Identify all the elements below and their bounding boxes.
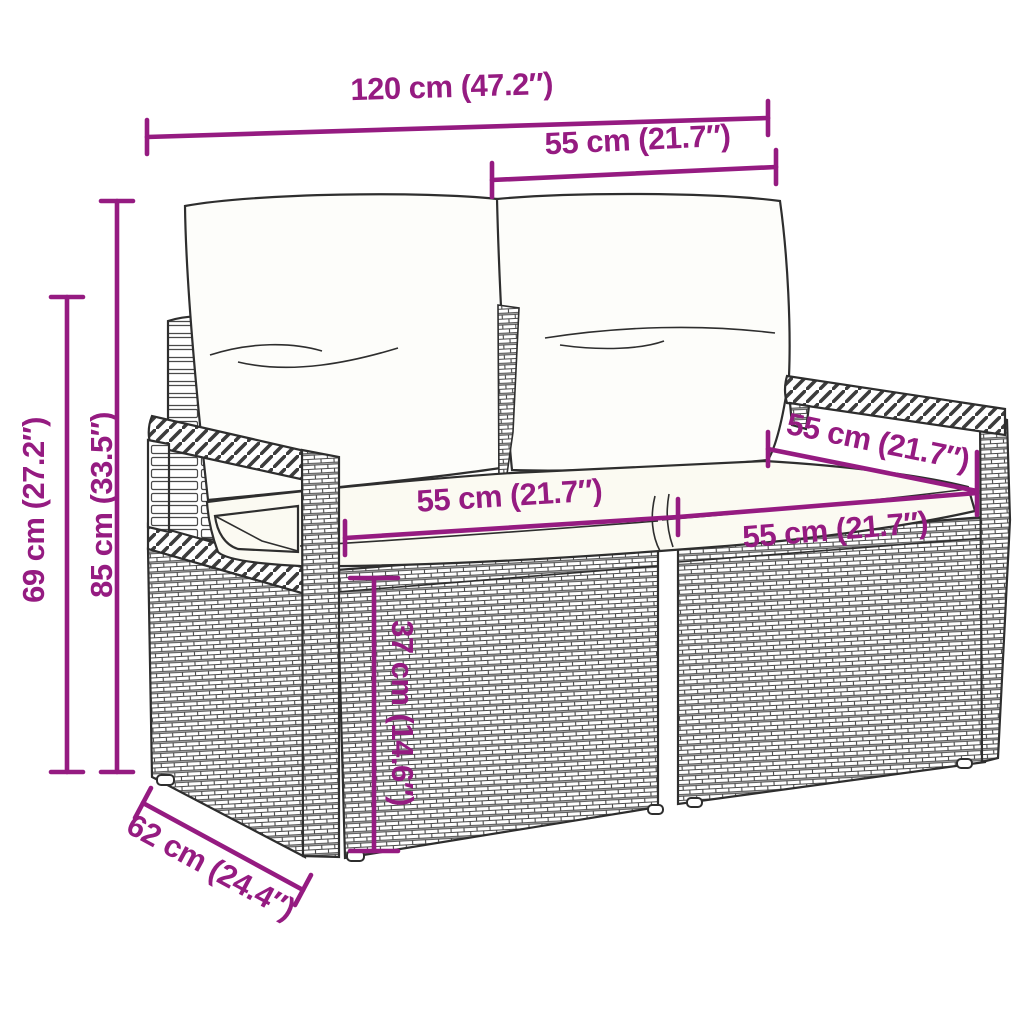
- back-cushion-right: [497, 194, 790, 471]
- right-corner-column: [980, 412, 1010, 762]
- dimension-line: [492, 167, 776, 180]
- dimension-label: 85 cm (33.5″): [84, 412, 119, 598]
- left-arm-post: [302, 450, 339, 857]
- base-left-side: [148, 549, 305, 857]
- dimension-overall-height: 85 cm (33.5″): [84, 201, 133, 772]
- dimension-label: 69 cm (27.2″): [16, 417, 51, 603]
- base-front-right: [678, 517, 985, 804]
- dimension-diagram: 120 cm (47.2″) 55 cm (21.7″) 85 cm (33.5…: [0, 0, 1024, 1024]
- dimension-backrest-width: 55 cm (21.7″): [492, 118, 776, 197]
- dimension-label: 120 cm (47.2″): [350, 66, 554, 107]
- dimension-label: 37 cm (14.6″): [385, 620, 420, 806]
- dimension-label: 55 cm (21.7″): [544, 118, 731, 162]
- left-outer-wall: [148, 440, 169, 532]
- dimension-armrest-height: 69 cm (27.2″): [16, 297, 83, 772]
